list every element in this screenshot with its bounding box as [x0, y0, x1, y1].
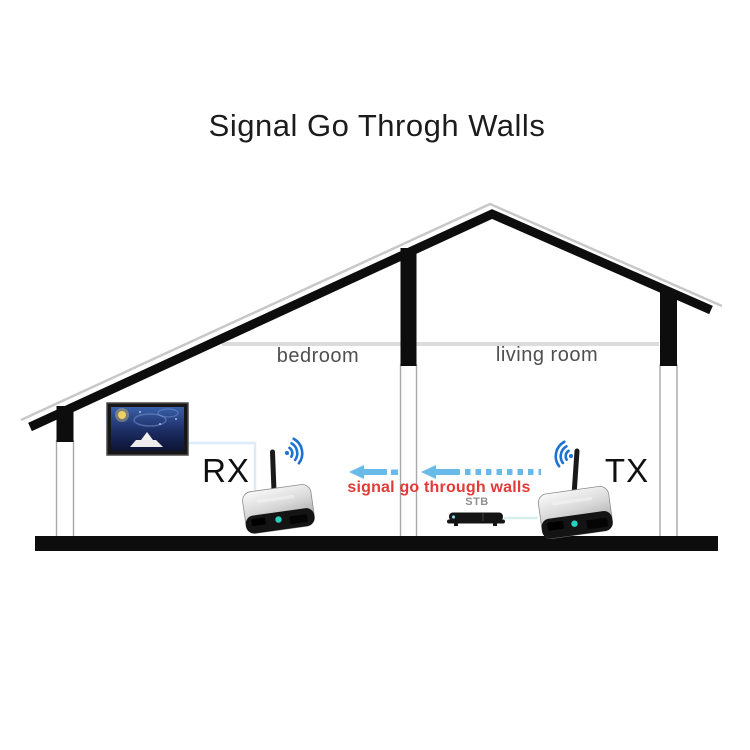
left-wall-lower — [57, 441, 74, 537]
signal-arrows — [349, 465, 541, 479]
tx-device — [537, 441, 614, 540]
wifi-waves-left-icon — [554, 441, 576, 469]
interior-wall-cap — [401, 248, 417, 366]
tx-antenna — [574, 451, 577, 495]
roof — [30, 214, 711, 427]
right-wall-cap — [660, 292, 677, 366]
rx-label: RX — [202, 452, 250, 490]
wall-tv — [107, 403, 188, 455]
diagram-title: Signal Go Throgh Walls — [209, 108, 546, 144]
left-arrow-icon — [349, 465, 398, 479]
signal-path-label: signal go through walls — [347, 479, 530, 497]
bedroom-label: bedroom — [277, 345, 359, 368]
starry-night-painting — [111, 407, 184, 451]
interior-wall-lower — [401, 365, 417, 537]
stb-label: STB — [465, 496, 489, 508]
right-arrow-dashed-icon — [421, 465, 460, 479]
diagram-canvas: Signal Go Throgh Walls bedroom living ro… — [0, 0, 750, 750]
floor — [35, 536, 718, 551]
stb-device — [447, 513, 505, 527]
stb-led — [452, 515, 455, 518]
rx-device — [241, 438, 315, 535]
right-wall-lower — [660, 365, 677, 537]
living-room-label: living room — [496, 344, 598, 367]
tx-label: TX — [605, 452, 649, 490]
rx-antenna — [273, 452, 275, 491]
wifi-waves-right-icon — [282, 438, 304, 466]
